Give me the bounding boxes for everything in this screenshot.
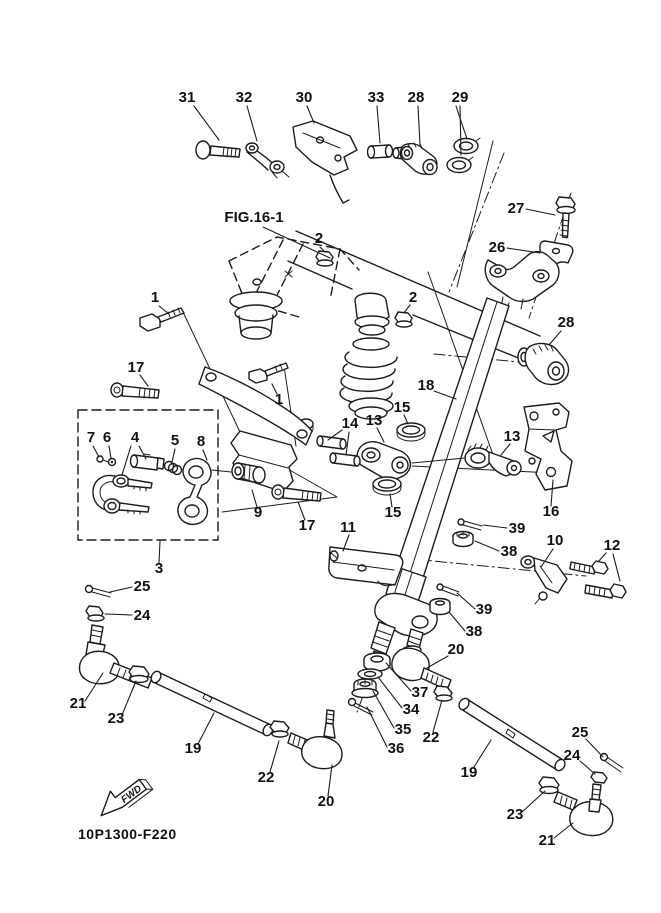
callout-leader-28: [418, 106, 420, 145]
drawing-number: 10P1300-F220: [78, 826, 177, 842]
callout-label-1: 1: [151, 289, 159, 306]
callout-label-FIG.16-1: FIG.16-1: [224, 209, 283, 226]
callout-leader-26: [507, 248, 540, 253]
callout-leader-15: [404, 415, 408, 424]
callout-label-28: 28: [558, 314, 575, 331]
callout-leader-18: [434, 391, 456, 399]
callout-label-39: 39: [476, 601, 493, 618]
callout-leader-39: [457, 593, 475, 609]
part-16-bracket: [524, 403, 572, 490]
callout-label-19: 19: [185, 740, 202, 757]
callout-label-17: 17: [299, 517, 316, 534]
callout-label-32: 32: [236, 89, 253, 106]
part-9-bushing: [212, 463, 265, 483]
callout-label-11: 11: [340, 519, 356, 536]
callout-leader-25: [110, 587, 132, 592]
callout-label-37: 37: [412, 684, 429, 701]
fwd-arrow: FWD: [93, 770, 153, 823]
callout-label-1: 1: [275, 391, 283, 408]
callout-leader-30: [307, 106, 314, 123]
callout-label-14: 14: [342, 415, 359, 432]
callout-label-16: 16: [543, 503, 560, 520]
part-31-bolt: [196, 141, 240, 159]
callout-leader-35: [373, 691, 394, 728]
callout-leader-13: [501, 444, 510, 455]
part-32-joint: [246, 143, 289, 178]
callout-label-22: 22: [258, 769, 275, 786]
callout-label-17: 17: [128, 359, 145, 376]
callout-label-7: 7: [87, 429, 95, 446]
callout-label-21: 21: [539, 832, 556, 849]
part-19-right-rod: [457, 697, 567, 773]
callout-leader-12: [613, 554, 620, 581]
callout-leader-24: [580, 761, 595, 774]
callout-label-30: 30: [296, 89, 313, 106]
callout-label-29: 29: [452, 89, 469, 106]
callout-leader-36: [367, 707, 387, 747]
callout-label-9: 9: [254, 504, 262, 521]
callout-leader-2: [404, 305, 410, 313]
callout-label-31: 31: [179, 89, 196, 106]
callout-label-35: 35: [395, 721, 412, 738]
callout-label-15: 15: [394, 399, 411, 416]
callout-label-19: 19: [461, 764, 478, 781]
callout-label-6: 6: [103, 429, 111, 446]
callout-label-22: 22: [423, 729, 440, 746]
callout-label-20: 20: [318, 793, 335, 810]
callout-leader-12: [598, 553, 606, 562]
callout-label-15: 15: [385, 504, 402, 521]
part-21-left-tie-rod-end: [79, 586, 152, 689]
callout-leader-22: [270, 741, 279, 772]
part-11-clamp: [329, 547, 403, 586]
part-3-lock-set-box: [78, 410, 218, 540]
callout-label-23: 23: [108, 710, 125, 727]
callout-leader-19: [474, 740, 491, 767]
callout-leader-20: [427, 656, 448, 668]
callout-label-8: 8: [197, 433, 205, 450]
part-13-left-arm: [357, 423, 425, 495]
callout-leader-23: [522, 791, 545, 812]
callout-label-4: 4: [131, 429, 140, 446]
callout-label-27: 27: [508, 200, 525, 217]
callout-label-21: 21: [70, 695, 87, 712]
part-12-bolts: [570, 561, 626, 598]
callout-label-24: 24: [134, 607, 151, 624]
callout-label-10: 10: [547, 532, 564, 549]
callout-label-25: 25: [572, 724, 589, 741]
part-38-39-lower: [430, 584, 459, 615]
shock-spring: [340, 338, 397, 419]
callout-label-26: 26: [489, 239, 506, 256]
part-20-left-tie-rod-end: [270, 710, 342, 769]
callout-label-5: 5: [171, 432, 179, 449]
callout-leader-38: [475, 541, 499, 551]
callout-leader-7: [93, 446, 99, 457]
parts-diagram-page: FWD 10P1300-F220 3132303328292726FIG.16-…: [0, 0, 661, 913]
part-19-left-rod: [149, 670, 275, 738]
callout-label-34: 34: [403, 701, 420, 718]
callout-leader-5: [172, 449, 175, 462]
part-29-washers: [447, 138, 480, 173]
part-30-bracket: [293, 121, 357, 203]
callout-label-38: 38: [466, 623, 483, 640]
callout-leader-25: [586, 739, 603, 757]
callout-label-24: 24: [564, 747, 581, 764]
callout-label-38: 38: [501, 543, 518, 560]
callout-label-20: 20: [448, 641, 465, 658]
callout-leader-31: [194, 106, 219, 140]
callout-leader-29: [456, 106, 467, 139]
callout-label-2: 2: [315, 230, 323, 247]
part-2-mounts: [230, 251, 412, 339]
callout-leader-20: [328, 765, 332, 796]
callout-leader-1: [159, 306, 169, 314]
callout-label-36: 36: [388, 740, 405, 757]
callout-label-39: 39: [509, 520, 526, 537]
part-28-right-joint: [518, 343, 568, 384]
part-27-bolt: [556, 197, 575, 238]
callout-leader-28: [549, 331, 561, 345]
callout-label-13: 13: [504, 428, 521, 445]
exploded-parts-diagram: FWD 10P1300-F220 3132303328292726FIG.16-…: [0, 0, 661, 913]
part-33-collar: [368, 145, 393, 158]
callout-leader-4: [122, 446, 131, 475]
callout-leader-38: [449, 612, 465, 631]
callout-leader-32: [247, 106, 257, 141]
callout-leader-27: [526, 209, 555, 215]
callout-leader-6: [109, 446, 111, 458]
callout-leader-22: [433, 700, 442, 732]
callout-label-23: 23: [507, 806, 524, 823]
callout-leader-21: [554, 823, 573, 838]
callout-label-28: 28: [408, 89, 425, 106]
callout-leader-13: [377, 428, 384, 442]
callout-label-2: 2: [409, 289, 417, 306]
callout-label-25: 25: [134, 578, 151, 595]
callout-label-33: 33: [368, 89, 385, 106]
callout-leader-17: [140, 375, 148, 386]
callout-label-13: 13: [366, 412, 383, 429]
callout-leader-8: [203, 450, 207, 460]
callout-leader-39: [483, 525, 507, 528]
callout-label-18: 18: [418, 377, 435, 394]
callout-label-3: 3: [155, 560, 163, 577]
callout-leader-33: [377, 106, 380, 143]
callout-label-12: 12: [604, 537, 621, 554]
callout-leader-24: [105, 614, 132, 615]
callout-leader-34: [378, 677, 402, 708]
part-28-upper-joint: [393, 143, 437, 175]
